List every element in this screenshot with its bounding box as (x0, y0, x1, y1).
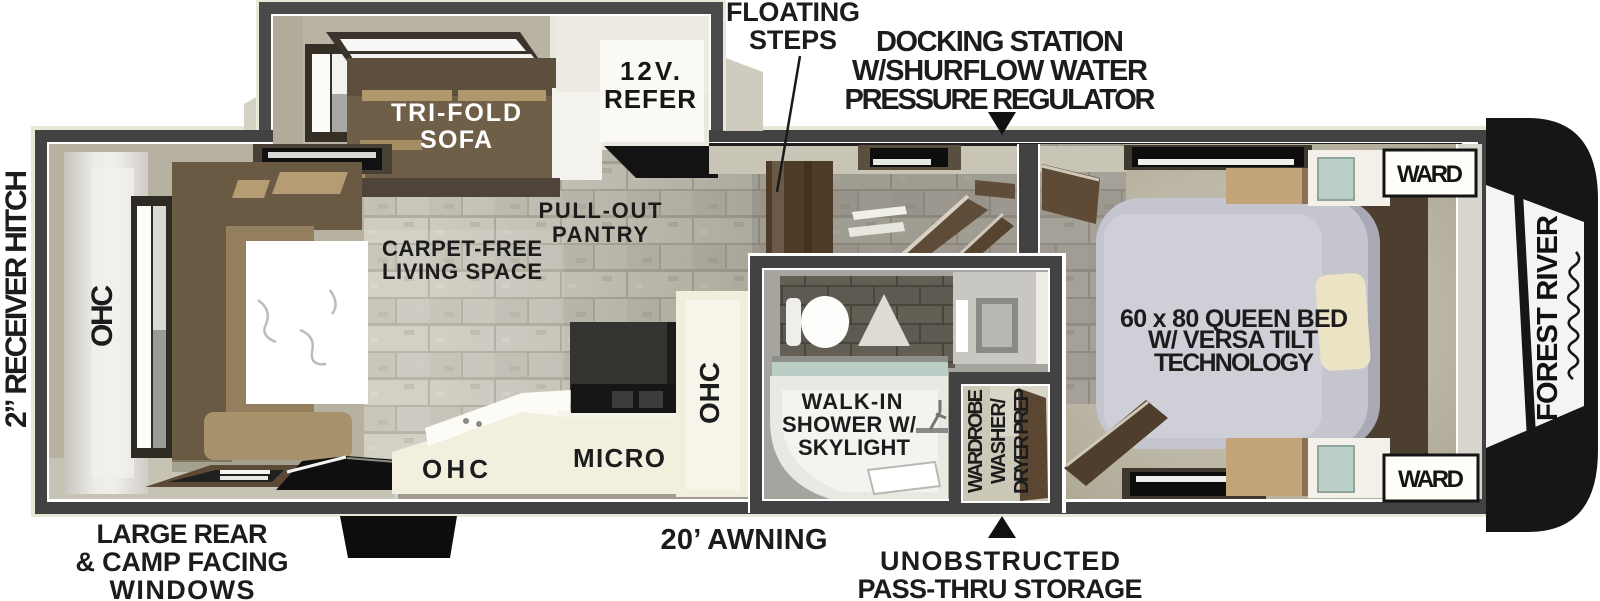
svg-text:WASHER/: WASHER/ (988, 398, 1010, 484)
svg-text:FOREST RIVER: FOREST RIVER (1532, 215, 1564, 421)
svg-text:SOFA: SOFA (420, 126, 492, 154)
svg-text:SKYLIGHT: SKYLIGHT (798, 435, 911, 460)
svg-text:2” RECEIVER HITCH: 2” RECEIVER HITCH (0, 170, 33, 428)
svg-text:DRYER PREP: DRYER PREP (1011, 388, 1033, 494)
svg-text:DOCKING STATION: DOCKING STATION (876, 26, 1124, 58)
svg-text:WALK-IN: WALK-IN (802, 389, 903, 414)
svg-text:SHOWER W/: SHOWER W/ (782, 412, 916, 437)
svg-text:REFER: REFER (604, 84, 696, 114)
svg-text:TECHNOLOGY: TECHNOLOGY (1154, 349, 1314, 377)
svg-text:WARD: WARD (1398, 466, 1464, 493)
svg-text:FLOATING: FLOATING (726, 0, 860, 27)
svg-text:LIVING SPACE: LIVING SPACE (382, 259, 542, 284)
svg-text:CARPET-FREE: CARPET-FREE (382, 236, 542, 261)
svg-text:PULL-OUT: PULL-OUT (539, 198, 663, 223)
svg-text:WINDOWS: WINDOWS (110, 575, 255, 601)
svg-text:STEPS: STEPS (749, 25, 837, 55)
svg-text:PRESSURE REGULATOR: PRESSURE REGULATOR (845, 84, 1156, 116)
svg-text:UNOBSTRUCTED: UNOBSTRUCTED (880, 546, 1120, 576)
svg-text:LARGE REAR: LARGE REAR (97, 519, 268, 549)
svg-text:MICRO: MICRO (573, 443, 665, 473)
svg-text:WARD: WARD (1397, 161, 1463, 188)
svg-text:W/SHURFLOW WATER: W/SHURFLOW WATER (852, 55, 1148, 87)
svg-text:OHC: OHC (86, 285, 119, 347)
svg-text:& CAMP FACING: & CAMP FACING (76, 547, 289, 577)
svg-text:OHC: OHC (422, 454, 488, 484)
svg-text:20’ AWNING: 20’ AWNING (661, 524, 828, 556)
svg-text:PASS-THRU STORAGE: PASS-THRU STORAGE (858, 574, 1143, 601)
svg-text:OHC: OHC (694, 362, 725, 424)
svg-text:WARDROBE: WARDROBE (965, 389, 987, 493)
